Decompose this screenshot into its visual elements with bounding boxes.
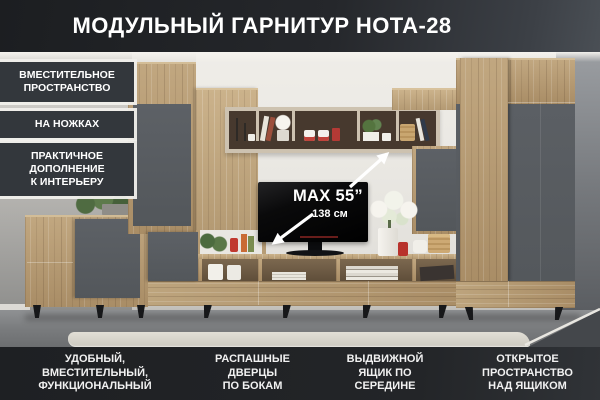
feature-label-open-space: ОТКРЫТОЕ ПРОСТРАНСТВО НАД ЯЩИКОМ: [455, 353, 600, 394]
title-bar: МОДУЛЬНЫЙ ГАРНИТУР НОТА-28: [0, 0, 600, 52]
diagonal-arrow-down: [274, 214, 313, 243]
feature-badge-capacity: ВМЕСТИТЕЛЬНОЕ ПРОСТРАНСТВО: [0, 62, 134, 102]
promo-poster: МОДУЛЬНЫЙ ГАРНИТУР НОТА-28: [0, 0, 600, 400]
page-title: МОДУЛЬНЫЙ ГАРНИТУР НОТА-28: [73, 13, 452, 39]
feature-label-doors: РАСПАШНЫЕ ДВЕРЦЫ ПО БОКАМ: [190, 353, 315, 394]
bottom-feature-bar: УДОБНЫЙ, ВМЕСТИТЕЛЬНЫЙ, ФУНКЦИОНАЛЬНЫЙ Р…: [0, 347, 600, 400]
feature-badge-legs: НА НОЖКАХ: [0, 111, 134, 138]
feature-badge-interior: ПРАКТИЧНОЕ ДОПОЛНЕНИЕ К ИНТЕРЬЕРУ: [0, 143, 134, 196]
feature-label-drawer: ВЫДВИЖНОЙ ЯЩИК ПО СЕРЕДИНЕ: [315, 353, 455, 394]
diagonal-arrow-up: [350, 154, 387, 187]
feature-label-comfort: УДОБНЫЙ, ВМЕСТИТЕЛЬНЫЙ, ФУНКЦИОНАЛЬНЫЙ: [0, 353, 190, 394]
